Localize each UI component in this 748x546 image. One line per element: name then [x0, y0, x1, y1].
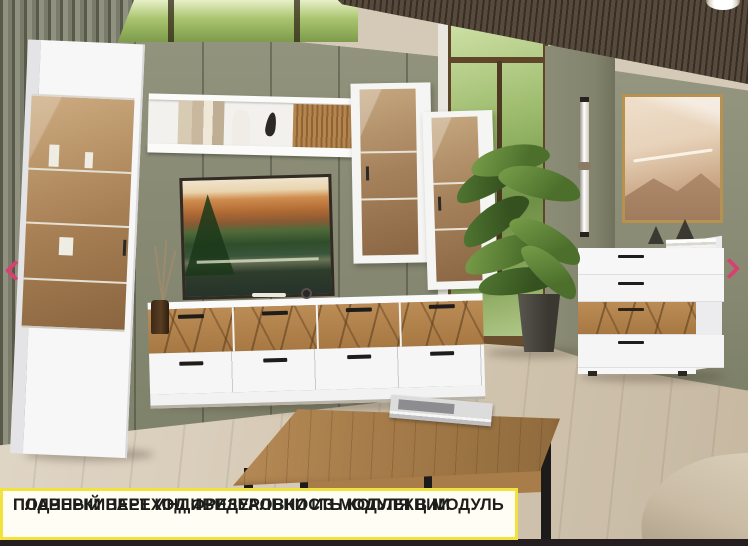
lamp-mount	[578, 162, 591, 170]
floor-vase	[151, 300, 169, 334]
lamp-cap	[580, 232, 589, 237]
chest-drawer	[578, 335, 724, 368]
chevron-right-icon	[718, 257, 739, 278]
drawer-handle	[618, 282, 644, 285]
chevron-left-icon	[4, 259, 25, 280]
chest-foot	[678, 371, 687, 376]
bottom-edge-strip	[0, 539, 748, 546]
shelf-bookend	[232, 109, 251, 145]
glassware-decor	[59, 237, 74, 256]
glassware-decor	[49, 144, 60, 166]
tv-landscape-screen	[179, 174, 334, 300]
drawer-handle	[347, 354, 371, 359]
carousel-prev-button[interactable]	[2, 250, 28, 290]
tv-pine-tree	[183, 194, 235, 277]
drawer-handle	[618, 341, 644, 344]
wall-led-lamp	[580, 102, 589, 232]
chest-foot	[588, 371, 597, 376]
cabinet-handle	[438, 197, 441, 211]
drawer-handle	[179, 361, 203, 366]
shelf-books	[178, 100, 225, 145]
carousel-next-button[interactable]	[716, 248, 742, 288]
drawer-handle	[430, 351, 454, 356]
magazine-cover-image	[398, 399, 455, 414]
lamp-cap	[580, 97, 589, 102]
drawer-handle	[618, 255, 644, 258]
decor-tray	[252, 293, 286, 297]
hanging-display-cabinet-1	[350, 82, 433, 263]
tv-stand	[148, 293, 486, 408]
chest-wood-drawer	[578, 302, 696, 335]
tall-display-cabinet	[10, 39, 145, 458]
table-clock	[301, 288, 312, 299]
chest-book-stack	[666, 238, 716, 249]
chest-drawer	[578, 248, 724, 275]
caption-line-2: ПОДЧЕРКИВАЕТ ИНДИВИДУАЛЬНОСТЬ КОЛЛЕКЦИИ	[13, 495, 450, 516]
cabinet-glass-door	[21, 94, 134, 332]
drawer-handle	[429, 304, 455, 309]
shelf-wood-slat-insert	[292, 104, 359, 150]
glassware-decor	[85, 152, 94, 168]
drawer-handle	[262, 311, 288, 316]
drawer-handle	[178, 314, 204, 319]
wall-shelf	[147, 91, 362, 160]
drawer-handle	[263, 358, 287, 363]
chest-drawer	[578, 275, 724, 302]
drawer-handle	[345, 307, 371, 312]
drawer-handle	[618, 308, 644, 311]
dune-art-highlight	[633, 148, 712, 162]
caption-banner: ПЛАВНЫЙ ПЕРЕХОД ФРЕЗЕРОВКИ ИЗ МОДУЛЯ В М…	[0, 488, 518, 540]
cabinet-handle	[366, 166, 369, 180]
dune-art-frame	[622, 94, 723, 223]
chest-of-drawers	[578, 240, 724, 378]
dune-art-shape	[625, 168, 720, 220]
furniture-catalog-slide: ПЛАВНЫЙ ПЕРЕХОД ФРЕЗЕРОВКИ ИЗ МОДУЛЯ В М…	[0, 0, 748, 546]
